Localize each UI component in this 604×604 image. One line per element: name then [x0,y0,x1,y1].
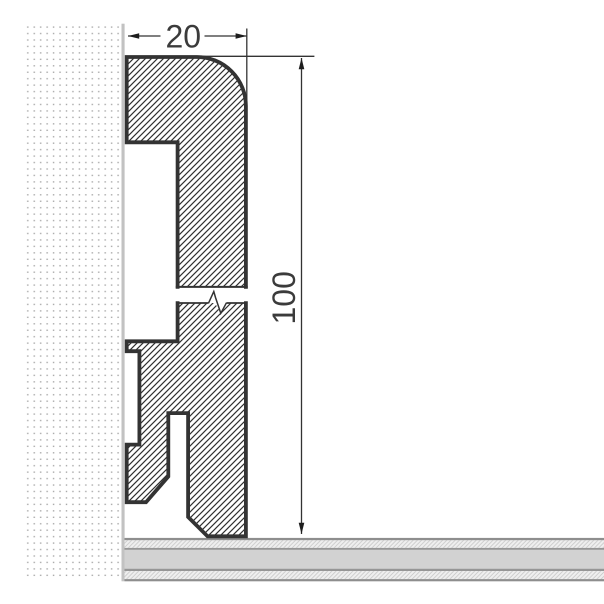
svg-text:20: 20 [166,18,202,54]
svg-text:100: 100 [266,271,302,324]
